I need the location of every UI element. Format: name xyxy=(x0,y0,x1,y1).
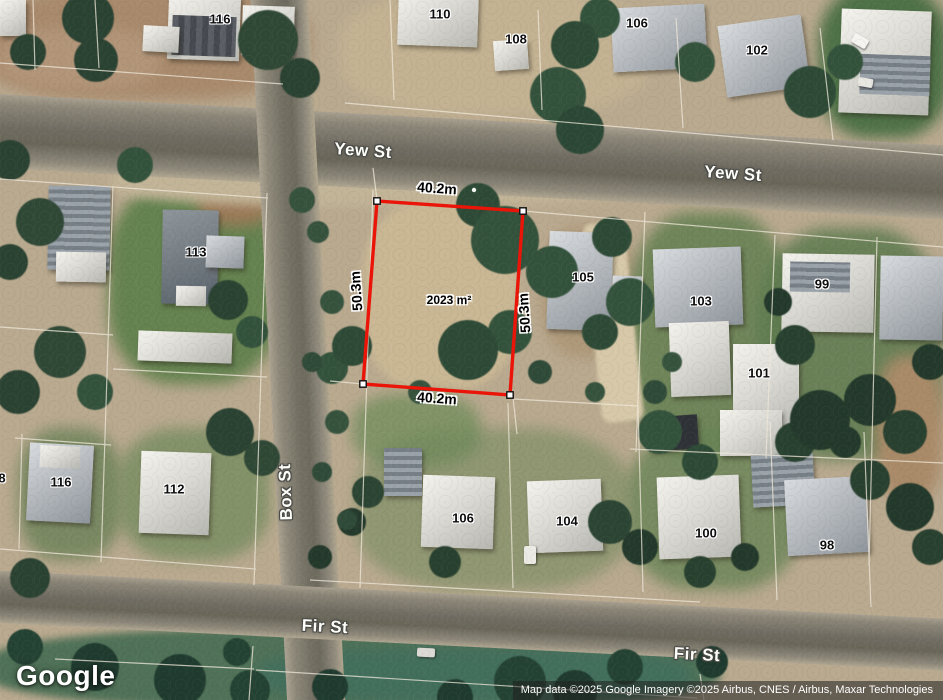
house-number: 100 xyxy=(695,526,717,541)
house-number: 112 xyxy=(164,482,185,497)
house-number: 101 xyxy=(748,366,770,381)
house-number: 104 xyxy=(556,514,578,529)
google-logo[interactable]: Google xyxy=(16,660,115,692)
house-number: 102 xyxy=(746,43,768,58)
house-number: 116 xyxy=(210,12,231,27)
house-number: 98 xyxy=(820,538,834,553)
measurement-height-left: 50.3m xyxy=(347,271,366,312)
street-label-fir-east: Fir St xyxy=(673,644,720,666)
street-label-box: Box St xyxy=(275,463,297,521)
house-number: 110 xyxy=(430,7,451,22)
plot-corner-handle[interactable] xyxy=(507,392,513,398)
measurement-width-bottom: 40.2m xyxy=(417,389,458,408)
plot-corner-handle[interactable] xyxy=(374,198,380,204)
attribution-text: Map data ©2025 Google Imagery ©2025 Airb… xyxy=(513,681,943,700)
measurement-width-top: 40.2m xyxy=(417,179,458,198)
house-number: 99 xyxy=(815,277,829,292)
parcel-lines xyxy=(0,0,943,700)
measurement-height-right: 50.3m xyxy=(515,293,534,334)
house-number: 8 xyxy=(0,471,6,486)
street-label-yew-west: Yew St xyxy=(333,139,392,163)
survey-dot xyxy=(472,188,476,192)
house-number: 116 xyxy=(51,475,72,490)
house-number: 106 xyxy=(452,511,474,526)
street-label-yew-east: Yew St xyxy=(703,162,762,186)
house-number: 106 xyxy=(626,16,648,31)
house-number: 108 xyxy=(505,32,527,47)
plot-corner-handle[interactable] xyxy=(520,208,526,214)
house-number: 105 xyxy=(572,270,594,285)
house-number: 103 xyxy=(690,294,712,309)
measurement-area: 2023 m² xyxy=(427,293,472,307)
house-number: 113 xyxy=(186,245,207,260)
satellite-map[interactable]: Yew St Yew St Box St Fir St Fir St 116 1… xyxy=(0,0,943,700)
street-label-fir-west: Fir St xyxy=(301,616,348,638)
plot-corner-handle[interactable] xyxy=(360,381,366,387)
parcel-overlay xyxy=(0,0,943,700)
